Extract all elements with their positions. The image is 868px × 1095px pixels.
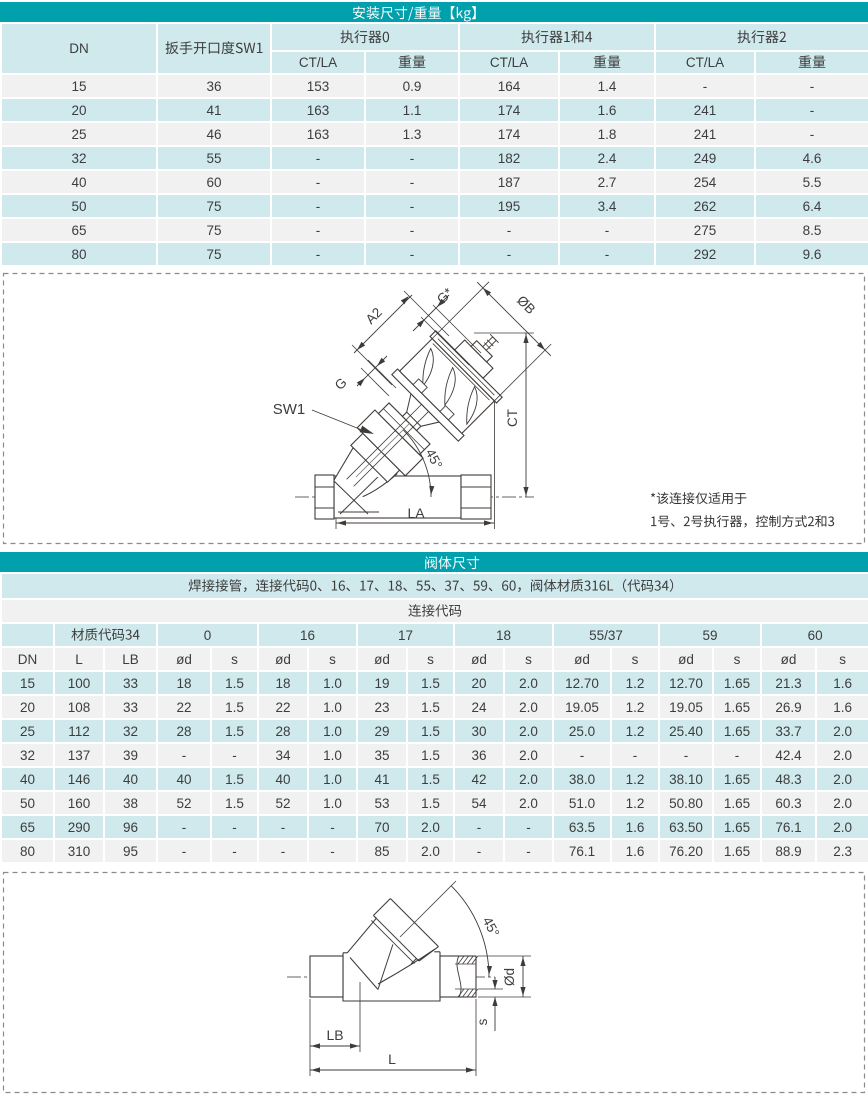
svg-text:CT: CT [505, 409, 520, 427]
svg-text:LA: LA [407, 505, 425, 521]
svg-text:s: s [475, 1018, 490, 1025]
svg-text:SW1: SW1 [273, 401, 306, 418]
svg-text:G*: G* [434, 284, 456, 306]
svg-text:L: L [388, 1051, 396, 1067]
svg-text:45°: 45° [480, 914, 503, 939]
svg-text:Ød: Ød [502, 968, 517, 986]
svg-text:G: G [332, 375, 350, 393]
svg-text:A2: A2 [363, 305, 385, 327]
svg-text:ØB: ØB [514, 293, 538, 317]
svg-text:LB: LB [326, 1027, 343, 1043]
